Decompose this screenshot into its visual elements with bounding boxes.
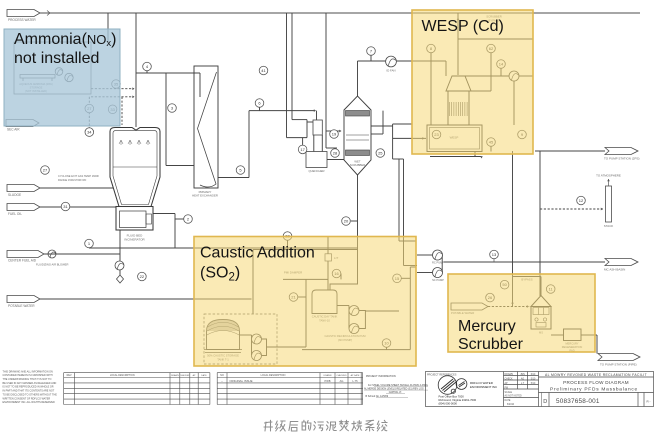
svg-text:TO PUMP STATION (2PS): TO PUMP STATION (2PS): [604, 157, 639, 161]
svg-text:Ammonia(NOx): Ammonia(NOx): [14, 31, 116, 49]
svg-text:TO BE DISCLOSED TO OTHERS WITH: TO BE DISCLOSED TO OTHERS WITHOUT THE: [3, 393, 58, 396]
svg-text:25: 25: [378, 151, 383, 156]
svg-text:Preliminary PFDs Massbalance: Preliminary PFDs Massbalance: [550, 387, 638, 393]
svg-text:STACK: STACK: [604, 224, 613, 228]
svg-text:CHECK: CHECK: [505, 378, 514, 380]
svg-text:41: 41: [261, 68, 266, 73]
svg-text:PROJECT INFORMATION: PROJECT INFORMATION: [366, 375, 396, 378]
svg-text:LOCAL DESCRIPTION: LOCAL DESCRIPTION: [110, 374, 135, 377]
svg-text:DATE: DATE: [505, 399, 511, 402]
svg-text:DRAWN: DRAWN: [505, 373, 514, 376]
svg-text:(804) 000-0000: (804) 000-0000: [439, 402, 458, 406]
svg-text:RC PUMP: RC PUMP: [432, 261, 444, 265]
svg-text:Scrubber: Scrubber: [458, 336, 524, 353]
svg-text:L.75: L.75: [352, 379, 358, 383]
svg-text:FLUIDIZING AIR BLOWER: FLUIDIZING AIR BLOWER: [36, 263, 68, 267]
svg-text:Caustic Addition: Caustic Addition: [200, 245, 315, 262]
svg-text:MC ASH BASIN: MC ASH BASIN: [604, 268, 625, 272]
svg-text:27: 27: [43, 168, 48, 173]
svg-text:(SO2): (SO2): [200, 265, 240, 284]
svg-text:PROCESS FLOW DIAGRAM: PROCESS FLOW DIAGRAM: [563, 380, 629, 385]
svg-text:ENVIRONMENT INC. ALL RIGHTS RE: ENVIRONMENT INC. ALL RIGHTS RESERVED: [3, 401, 55, 404]
svg-text:QUENCHER: QUENCHER: [308, 169, 324, 173]
svg-text:13: 13: [492, 252, 497, 257]
svg-text:THE UNDERSTANDING THAT IT IS N: THE UNDERSTANDING THAT IT IS NOT TO: [3, 378, 52, 381]
svg-text:POTABLE WATER: POTABLE WATER: [8, 304, 35, 308]
svg-text:12: 12: [579, 198, 584, 203]
svg-text:AP DATE: AP DATE: [351, 374, 360, 377]
svg-text:Mercury: Mercury: [458, 318, 516, 335]
svg-text:HEAT EXCHANGER: HEAT EXCHANGER: [192, 194, 218, 198]
svg-text:AG: AG: [340, 379, 344, 383]
svg-text:not installed: not installed: [14, 50, 99, 67]
svg-text:AP: AP: [505, 382, 509, 385]
svg-text:5/10: 5/10: [531, 378, 536, 380]
svg-text:6/2010: 6/2010: [507, 404, 515, 406]
svg-text:LOCAL DESCRIPTION: LOCAL DESCRIPTION: [261, 374, 286, 377]
svg-text:22: 22: [140, 274, 145, 279]
svg-text:RANGE 1500/1700F RD: RANGE 1500/1700F RD: [58, 178, 86, 182]
svg-text:17: 17: [300, 147, 305, 152]
svg-text:L.T: L.T: [521, 383, 525, 385]
svg-text:AS NOT NOTED: AS NOT NOTED: [505, 394, 523, 397]
svg-text:INCINERATOR: INCINERATOR: [124, 238, 145, 242]
svg-text:PROJECT REFERENCES: PROJECT REFERENCES: [427, 374, 457, 377]
svg-text:ENVIRONMENT INC: ENVIRONMENT INC: [470, 385, 497, 389]
svg-text:PM: PM: [505, 387, 509, 389]
svg-text:5/10: 5/10: [531, 383, 536, 385]
svg-text:TO ATMOSPHERE: TO ATMOSPHERE: [596, 174, 621, 178]
svg-text:DRAWN: DRAWN: [171, 374, 179, 377]
svg-text:19: 19: [332, 132, 337, 137]
svg-text:ID FAN: ID FAN: [386, 69, 395, 73]
svg-text:D: D: [543, 399, 547, 405]
svg-text:SCRUBBER: SCRUBBER: [350, 163, 366, 167]
svg-text:--: --: [221, 380, 223, 383]
svg-text:CYCLONE EXIT GAS TEMP 1600F: CYCLONE EXIT GAS TEMP 1600F: [58, 174, 99, 178]
svg-text:THIS DRAWING AND ALL INFORMATI: THIS DRAWING AND ALL INFORMATION ON: [3, 370, 54, 373]
svg-text:28: 28: [333, 151, 338, 156]
svg-text:NO: NO: [220, 374, 224, 377]
svg-text:R -: R -: [647, 400, 651, 404]
svg-text:IS NOT TO BE REPRODUCED IN WHO: IS NOT TO BE REPRODUCED IN WHOLE OR: [3, 386, 54, 389]
svg-text:WRITTEN CONSENT OF RDFLCO WATE: WRITTEN CONSENT OF RDFLCO WATER: [3, 397, 51, 400]
svg-text:TO PUMP STATION (PIPE): TO PUMP STATION (PIPE): [600, 363, 637, 367]
svg-text:Post Office Box 7000: Post Office Box 7000: [439, 394, 465, 398]
svg-text:31: 31: [63, 204, 68, 209]
svg-text:AG: AG: [521, 377, 525, 380]
svg-text:AL MOWRY REVONED WASTE RECLAMA: AL MOWRY REVONED WASTE RECLAMATION FACIL…: [545, 373, 647, 377]
svg-text:SLUDGE: SLUDGE: [8, 193, 21, 197]
svg-text:SCALE: SCALE: [505, 391, 513, 394]
svg-text:DATE: DATE: [201, 374, 207, 377]
svg-text:IN PART AND THAT ITS CONTENTS: IN PART AND THAT ITS CONTENTS ARE NOT: [3, 390, 55, 393]
svg-text:CENTER FUEL AID: CENTER FUEL AID: [8, 259, 37, 263]
svg-text:34: 34: [87, 130, 92, 135]
svg-text:PROCESS WATER: PROCESS WATER: [8, 18, 36, 22]
svg-text:CONTAINED HEREON IS FURNISHED: CONTAINED HEREON IS FURNISHED WITH: [3, 374, 53, 377]
svg-text:6/10: 6/10: [531, 374, 536, 376]
svg-text:SEC AIR: SEC AIR: [7, 128, 20, 132]
svg-text:REV: REV: [67, 374, 72, 377]
svg-text:ORIGINAL ISSUE: ORIGINAL ISSUE: [229, 379, 252, 383]
svg-text:WESP (Cd): WESP (Cd): [422, 18, 504, 35]
svg-text:20: 20: [344, 219, 349, 224]
svg-text:CHECKED: CHECKED: [336, 375, 347, 377]
svg-text:CHECKED: CHECKED: [180, 375, 191, 377]
svg-text:BE USED IN ANY MANNER AS RELEA: BE USED IN ANY MANNER AS RELEASED AND: [3, 382, 57, 385]
svg-text:PWB: PWB: [325, 379, 331, 383]
svg-text:SC PUMP: SC PUMP: [432, 278, 444, 282]
svg-text:50837658-001: 50837658-001: [556, 398, 600, 405]
svg-text:Richmond, Virginia 23261-7000: Richmond, Virginia 23261-7000: [439, 398, 477, 402]
svg-text:FUEL OIL: FUEL OIL: [8, 212, 22, 216]
svg-text:DRAWN: DRAWN: [324, 374, 332, 377]
svg-text:JMS: JMS: [520, 374, 525, 376]
